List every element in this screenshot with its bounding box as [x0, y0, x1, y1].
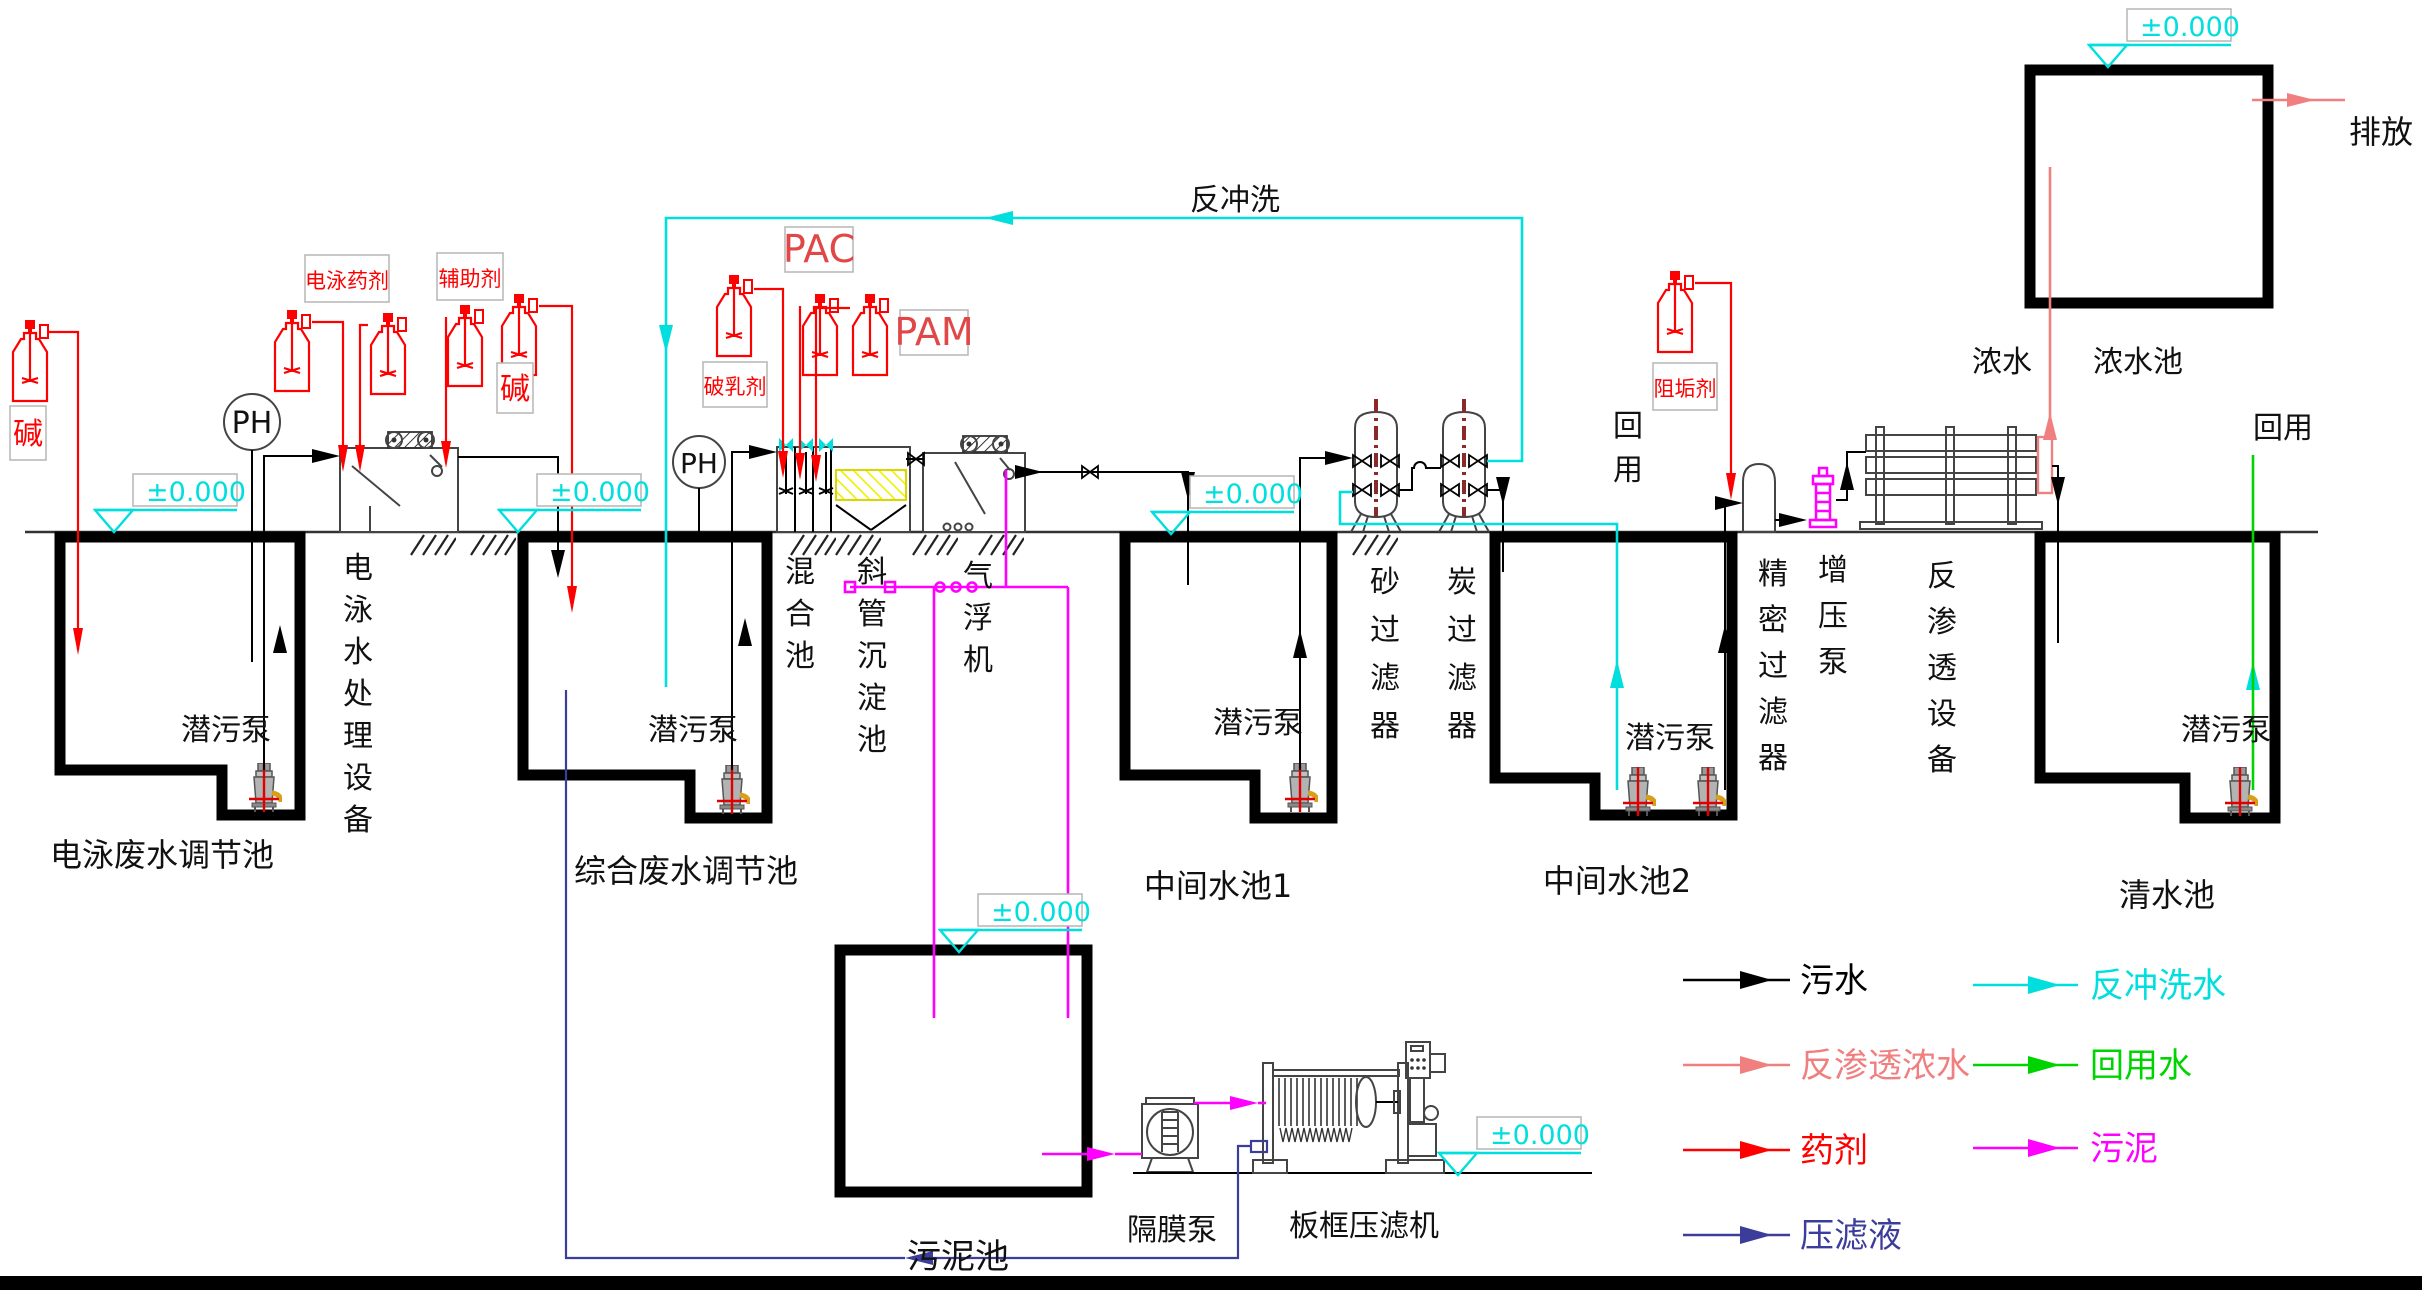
sand-filter: [1351, 399, 1401, 532]
pam-bottle: [853, 294, 888, 375]
alkali1-label: 碱: [13, 417, 43, 452]
pool-sludge: [840, 950, 1087, 1192]
sewage-lines: [264, 445, 2065, 790]
ph-meter-1: PH: [224, 394, 280, 662]
reuse-top-label: 回用: [2253, 411, 2313, 446]
ep-agent-bottle-2: [371, 313, 406, 394]
antiscalant-bottle: [1658, 271, 1693, 352]
booster-pump: [1810, 468, 1836, 527]
pool5-label: 清水池: [2119, 876, 2215, 914]
ph2-label: PH: [680, 447, 718, 480]
settler-label: 斜管沉淀池: [857, 555, 887, 758]
pump-label-1: 潜污泵: [181, 713, 271, 748]
pool3-label: 中间水池1: [1144, 867, 1292, 905]
legend-row-filtrate: 压滤液: [1683, 1216, 1902, 1256]
legend-row-chemical: 药剂: [1683, 1131, 1868, 1171]
mixing-label: 混合池: [785, 555, 815, 674]
submersible-pump-4a: [1623, 767, 1655, 816]
submersible-pump-3: [1285, 763, 1317, 812]
level-text-3: ±0.000: [1203, 479, 1303, 510]
pump-label-5: 潜污泵: [2181, 713, 2271, 748]
diaphragm-pump: [1142, 1098, 1198, 1172]
pump-label-2: 潜污泵: [648, 713, 738, 748]
legend: 污水 反渗透浓水 药剂 压滤液 反冲洗水 回用水: [1683, 961, 2226, 1256]
ep-agent-bottle-1: [275, 310, 310, 391]
carbon-filter-label: 炭过滤器: [1447, 565, 1477, 744]
level-text-2: ±0.000: [550, 477, 650, 508]
backwash-label: 反冲洗: [1190, 183, 1280, 218]
demulsifier-label: 破乳剂: [704, 375, 767, 399]
sludge-pool-label: 污泥池: [907, 1237, 1009, 1277]
svg-text:污泥: 污泥: [2090, 1129, 2158, 1169]
daf-label: 气浮机: [963, 559, 993, 678]
ep-agent-label: 电泳药剂: [305, 269, 389, 293]
svg-text:污水: 污水: [1800, 961, 1868, 1001]
precision-filter-label: 精密过滤器: [1758, 557, 1788, 776]
auxiliary-bottle: [448, 305, 483, 386]
concentrate-lines: [2043, 93, 2345, 440]
ep-treatment-label: 电泳水处理设备: [343, 551, 373, 838]
reuse-side-label: 回用: [1613, 409, 1643, 488]
auxiliary-label: 辅助剂: [439, 267, 502, 291]
pool4-label: 中间水池2: [1543, 862, 1691, 900]
pool2-label: 综合废水调节池: [574, 852, 798, 890]
submersible-pump-1: [249, 763, 281, 812]
alkali1-bottle: [13, 320, 48, 401]
pump-label-3: 潜污泵: [1213, 706, 1303, 741]
pool1-label: 电泳废水调节池: [50, 836, 274, 874]
ph-meter-2: PH: [673, 436, 725, 532]
pump-label-4: 潜污泵: [1625, 721, 1715, 756]
pool-concentrate: [2030, 70, 2268, 303]
ph1-label: PH: [232, 406, 273, 441]
svg-text:压滤液: 压滤液: [1800, 1216, 1902, 1256]
level-text-5: ±0.000: [991, 897, 1091, 928]
legend-row-sludge: 污泥: [1973, 1129, 2158, 1169]
booster-pump-label: 增压泵: [1818, 553, 1848, 680]
level-text-4: ±0.000: [2140, 12, 2240, 43]
concentrate-label: 浓水: [1972, 345, 2032, 380]
pam-label: PAM: [894, 310, 973, 354]
level-markers: ±0.000 ±0.000 ±0.000 ±0.000 ±0.000 ±0.00…: [95, 9, 2240, 1175]
process-flow-diagram: PH PH: [0, 0, 2422, 1290]
legend-row-ro-concentrate: 反渗透浓水: [1683, 1046, 1970, 1086]
demulsifier-bottle: [717, 275, 752, 356]
filter-press-label: 板框压滤机: [1289, 1209, 1439, 1244]
precision-filter: [1743, 464, 1775, 532]
carbon-filter: [1439, 399, 1489, 532]
alkali2-label: 碱: [500, 372, 530, 407]
level-text-6: ±0.000: [1490, 1120, 1590, 1151]
svg-text:药剂: 药剂: [1800, 1131, 1868, 1171]
submersible-pump-4b: [1693, 767, 1725, 816]
legend-row-reuse: 回用水: [1973, 1046, 2192, 1086]
sludge-lines: [845, 470, 1266, 1161]
legend-row-sewage: 污水: [1683, 961, 1868, 1001]
ro-unit: [1860, 427, 2052, 529]
ro-unit-label: 反渗透设备: [1927, 559, 1957, 778]
discharge-label: 排放: [2349, 113, 2413, 151]
diaphragm-pump-label: 隔膜泵: [1127, 1213, 1217, 1248]
pac-bottle: [803, 294, 838, 375]
svg-text:回用水: 回用水: [2090, 1046, 2192, 1086]
svg-text:反渗透浓水: 反渗透浓水: [1800, 1046, 1970, 1086]
sand-filter-label: 砂过滤器: [1370, 565, 1400, 744]
submersible-pump-2: [717, 765, 749, 814]
legend-row-backwash: 反冲洗水: [1973, 966, 2226, 1006]
filter-press: [1253, 1042, 1445, 1173]
pac-label: PAC: [783, 227, 855, 271]
bottom-border-bar: [0, 1276, 2422, 1290]
svg-text:反冲洗水: 反冲洗水: [2090, 966, 2226, 1006]
concentrate-pool-label: 浓水池: [2093, 345, 2183, 380]
level-text-1: ±0.000: [146, 477, 246, 508]
antiscalant-label: 阻垢剂: [1654, 377, 1717, 401]
daf-machine: [923, 436, 1025, 532]
